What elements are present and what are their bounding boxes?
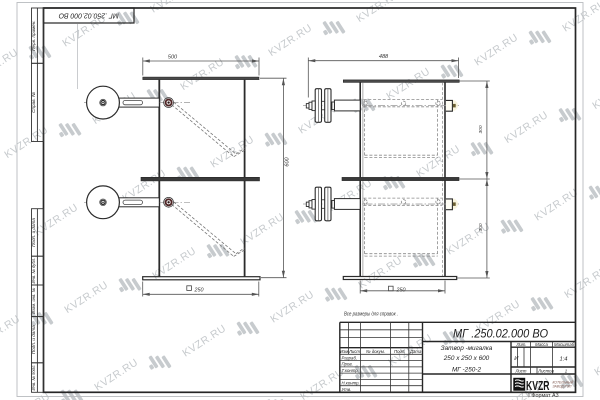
svg-text:Дата: Дата xyxy=(409,349,422,354)
svg-text:№ докум.: № докум. xyxy=(366,349,385,354)
svg-text:Листов: Листов xyxy=(537,368,554,373)
svg-text:ЗАВОД РЭП: ЗАВОД РЭП xyxy=(553,385,573,389)
svg-text:Перв. примен.: Перв. примен. xyxy=(31,20,36,51)
svg-text:300: 300 xyxy=(478,125,484,133)
svg-text:Инв. № дубл.: Инв. № дубл. xyxy=(31,258,36,284)
svg-text:Масса: Масса xyxy=(535,342,548,347)
svg-text:Разраб.: Разраб. xyxy=(342,355,358,360)
svg-text:Лист: Лист xyxy=(348,349,360,354)
svg-text:Затвор -мигалка: Затвор -мигалка xyxy=(441,345,493,352)
svg-text:Пров.: Пров. xyxy=(342,362,353,367)
svg-text:Масштаб: Масштаб xyxy=(554,342,575,347)
svg-text:488: 488 xyxy=(379,54,389,60)
svg-text:Изм: Изм xyxy=(340,349,348,354)
svg-text:Подп. и дата: Подп. и дата xyxy=(31,325,36,354)
svg-text:МГ .250.02.000 ВО: МГ .250.02.000 ВО xyxy=(58,12,118,21)
svg-text:Справ. №: Справ. № xyxy=(31,92,36,113)
svg-text:250 х 250 х 600: 250 х 250 х 600 xyxy=(443,355,490,362)
svg-text:1:4: 1:4 xyxy=(559,356,567,362)
svg-text:Лит.: Лит. xyxy=(515,342,526,347)
svg-text:Утв.: Утв. xyxy=(342,387,352,392)
svg-text:Формат А3: Формат А3 xyxy=(531,393,558,399)
svg-text:МГ .250.02.000 ВО: МГ .250.02.000 ВО xyxy=(453,327,548,341)
svg-text:Лист: Лист xyxy=(514,368,526,373)
svg-text:250: 250 xyxy=(396,288,406,294)
svg-text:300: 300 xyxy=(478,223,484,231)
svg-text:KVZR: KVZR xyxy=(526,378,550,393)
svg-text:Подп. и дата: Подп. и дата xyxy=(31,218,36,247)
svg-text:600: 600 xyxy=(285,156,291,166)
svg-text:Взам. инв. №: Взам. инв. № xyxy=(31,287,36,313)
svg-text:МГ -250-2: МГ -250-2 xyxy=(452,367,481,374)
svg-text:Все размеры для справок .: Все размеры для справок . xyxy=(344,312,398,318)
svg-text:Подп.: Подп. xyxy=(394,349,405,354)
svg-text:250: 250 xyxy=(194,287,204,293)
svg-text:Т.контр.: Т.контр. xyxy=(342,368,359,373)
svg-text:Н.контр.: Н.контр. xyxy=(342,381,360,386)
svg-text:Инв. № подл.: Инв. № подл. xyxy=(31,365,36,391)
svg-text:500: 500 xyxy=(168,55,178,61)
